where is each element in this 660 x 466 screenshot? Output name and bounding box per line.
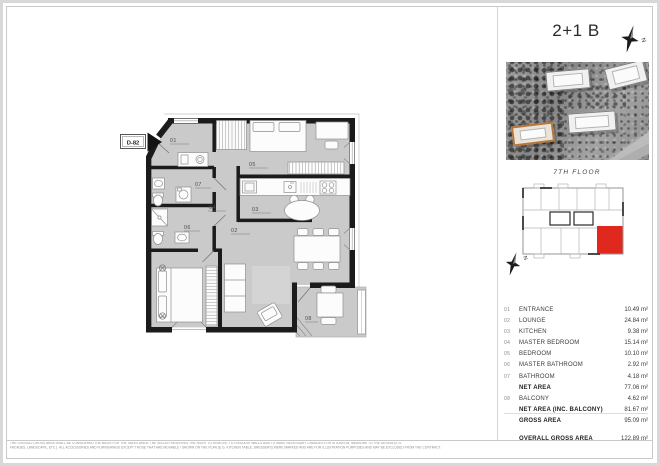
legend-row: 02LOUNGE24.84 m² xyxy=(504,318,648,329)
dining-chair xyxy=(298,263,309,270)
legend-room-label: ENTRANCE xyxy=(519,307,624,313)
unit-tag-text: D-82 xyxy=(127,140,140,146)
legend-room-number: 07 xyxy=(504,374,519,380)
legend-room-label: BATHROOM xyxy=(519,374,628,380)
compass-letter: N xyxy=(639,37,646,43)
dining-chair xyxy=(298,229,309,236)
legend-room-number: 02 xyxy=(504,318,519,324)
keyplan-compass-icon xyxy=(502,250,523,277)
legend-area-value: 4.18 m² xyxy=(628,374,648,380)
dining-table xyxy=(294,236,340,262)
legend-row: NET AREA77.06 m² xyxy=(504,385,648,396)
kitchen-table xyxy=(285,201,320,221)
room-label-master-bedroom: 04 xyxy=(209,205,216,211)
legend-area-value: 2.92 m² xyxy=(628,362,648,368)
legend-room-number: 08 xyxy=(504,396,519,402)
key-plan: N xyxy=(500,182,652,282)
area-legend: 01ENTRANCE10.49 m²02LOUNGE24.84 m²03KITC… xyxy=(504,307,648,447)
legend-endline xyxy=(504,413,648,414)
legend-row: 05BEDROOM10.10 m² xyxy=(504,351,648,362)
dining-chair xyxy=(313,263,324,270)
disclaimer: THE OVERALL GROSS AREA SHALL BE CONSIDER… xyxy=(10,442,635,450)
north-compass-icon: N xyxy=(613,20,653,58)
building-footprint xyxy=(604,62,648,91)
legend-room-number: 01 xyxy=(504,307,519,313)
legend-room-number: 05 xyxy=(504,351,519,357)
room-label-lounge: 02 xyxy=(231,228,238,234)
legend-room-label: GROSS AREA xyxy=(519,418,624,424)
legend-area-value: 81.67 m² xyxy=(624,407,648,413)
plan-sheet: 01 05 07 04 03 06 02 08 D-82 2+1 B xyxy=(0,0,660,466)
legend-room-number: 06 xyxy=(504,362,519,368)
legend-area-value: 24.84 m² xyxy=(624,318,648,324)
legend-row: 01ENTRANCE10.49 m² xyxy=(504,307,648,318)
building-footprint xyxy=(567,110,616,133)
keyplan-compass-letter: N xyxy=(521,255,528,261)
legend-room-label: BALCONY xyxy=(519,396,628,402)
site-aerial-photo xyxy=(506,62,649,160)
legend-room-label: NET AREA (INC. BALCONY) xyxy=(519,407,624,413)
legend-room-label: BEDROOM xyxy=(519,351,624,357)
building-footprint xyxy=(545,68,591,92)
legend-area-value: 4.62 m² xyxy=(628,396,648,402)
floor-label: 7TH FLOOR xyxy=(505,169,649,176)
legend-room-label: KITCHEN xyxy=(519,329,628,335)
highlighted-unit xyxy=(597,226,623,254)
legend-area-value: 10.10 m² xyxy=(624,351,648,357)
legend-area-value: 9.38 m² xyxy=(628,329,648,335)
legend-row: 07BATHROOM4.18 m² xyxy=(504,374,648,385)
desk xyxy=(316,122,348,139)
dining-chair xyxy=(329,263,340,270)
legend-row: 03KITCHEN9.38 m² xyxy=(504,329,648,340)
legend-area-value: 15.14 m² xyxy=(624,340,648,346)
dining-chair xyxy=(329,229,340,236)
dining-chair xyxy=(313,229,324,236)
room-label-bathroom: 07 xyxy=(195,182,202,188)
legend-room-label: LOUNGE xyxy=(519,318,624,324)
legend-area-value: 95.09 m² xyxy=(624,418,648,424)
panel-divider xyxy=(497,7,498,440)
balcony-table xyxy=(317,293,343,317)
room-label-bedroom: 05 xyxy=(249,162,256,168)
legend-room-number: 03 xyxy=(504,329,519,335)
room-label-balcony: 08 xyxy=(305,316,312,322)
legend-room-number: 04 xyxy=(504,340,519,346)
legend-area-value: 77.06 m² xyxy=(624,385,648,391)
balcony-chair xyxy=(321,318,336,325)
balcony-chair xyxy=(321,286,336,293)
room-label-entrance: 01 xyxy=(170,138,177,144)
legend-area-value: 10.49 m² xyxy=(624,307,648,313)
disclaimer-line2: FACADES, LANDSCAPE, ETC.). ALL ACCESSORI… xyxy=(10,446,635,450)
legend-room-label: NET AREA xyxy=(519,385,624,391)
sofa xyxy=(225,264,246,312)
floor-plan-drawing: 01 05 07 04 03 06 02 08 D-82 xyxy=(55,85,400,355)
legend-room-label: MASTER BATHROOM xyxy=(519,362,628,368)
rug xyxy=(252,266,290,304)
room-label-kitchen: 03 xyxy=(252,207,259,213)
legend-row: 06MASTER BATHROOM2.92 m² xyxy=(504,362,648,373)
legend-row: GROSS AREA95.09 m² xyxy=(504,418,648,429)
desk-chair xyxy=(325,141,338,149)
legend-room-label: MASTER BEDROOM xyxy=(519,340,624,346)
legend-row: 08BALCONY4.62 m² xyxy=(504,396,648,407)
room-label-master-bathroom: 06 xyxy=(184,225,191,231)
legend-row: 04MASTER BEDROOM15.14 m² xyxy=(504,340,648,351)
